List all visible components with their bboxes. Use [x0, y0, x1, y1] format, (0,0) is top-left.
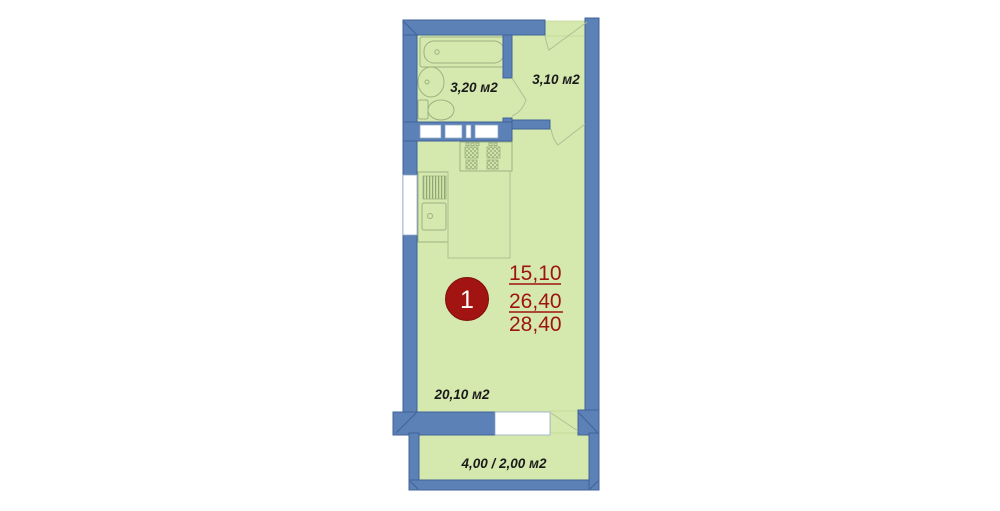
living-area-value: 15,10	[509, 262, 562, 285]
wall-bottom-left	[393, 412, 495, 435]
wall-right	[585, 18, 599, 435]
floor-plan: 3,20 м2 3,10 м2 20,10 м2 4,00 / 2,00 м2 …	[0, 0, 1000, 511]
wall-niches	[420, 125, 498, 138]
apartment-area-value: 26,40	[509, 290, 562, 313]
apartment-interior	[417, 35, 585, 412]
unit-number: 1	[460, 286, 474, 314]
balcony-area-label: 4,00 / 2,00 м2	[460, 456, 547, 471]
total-area-value: 28,40	[509, 313, 562, 336]
wall-bathroom-hall-upper	[503, 35, 512, 78]
bathroom-area-label: 3,20 м2	[450, 80, 498, 95]
window-icon	[403, 175, 417, 235]
floor-plan-canvas: 3,20 м2 3,10 м2 20,10 м2 4,00 / 2,00 м2 …	[0, 0, 1000, 511]
living-room-area-label: 20,10 м2	[433, 387, 490, 402]
wall-top	[403, 20, 545, 35]
dish-rack-icon	[423, 176, 446, 199]
hallway-area-label: 3,10 м2	[532, 72, 580, 87]
balcony-window-opening	[495, 412, 550, 435]
balcony-wall-bottom	[409, 480, 599, 490]
wall-hall-room	[512, 120, 550, 129]
